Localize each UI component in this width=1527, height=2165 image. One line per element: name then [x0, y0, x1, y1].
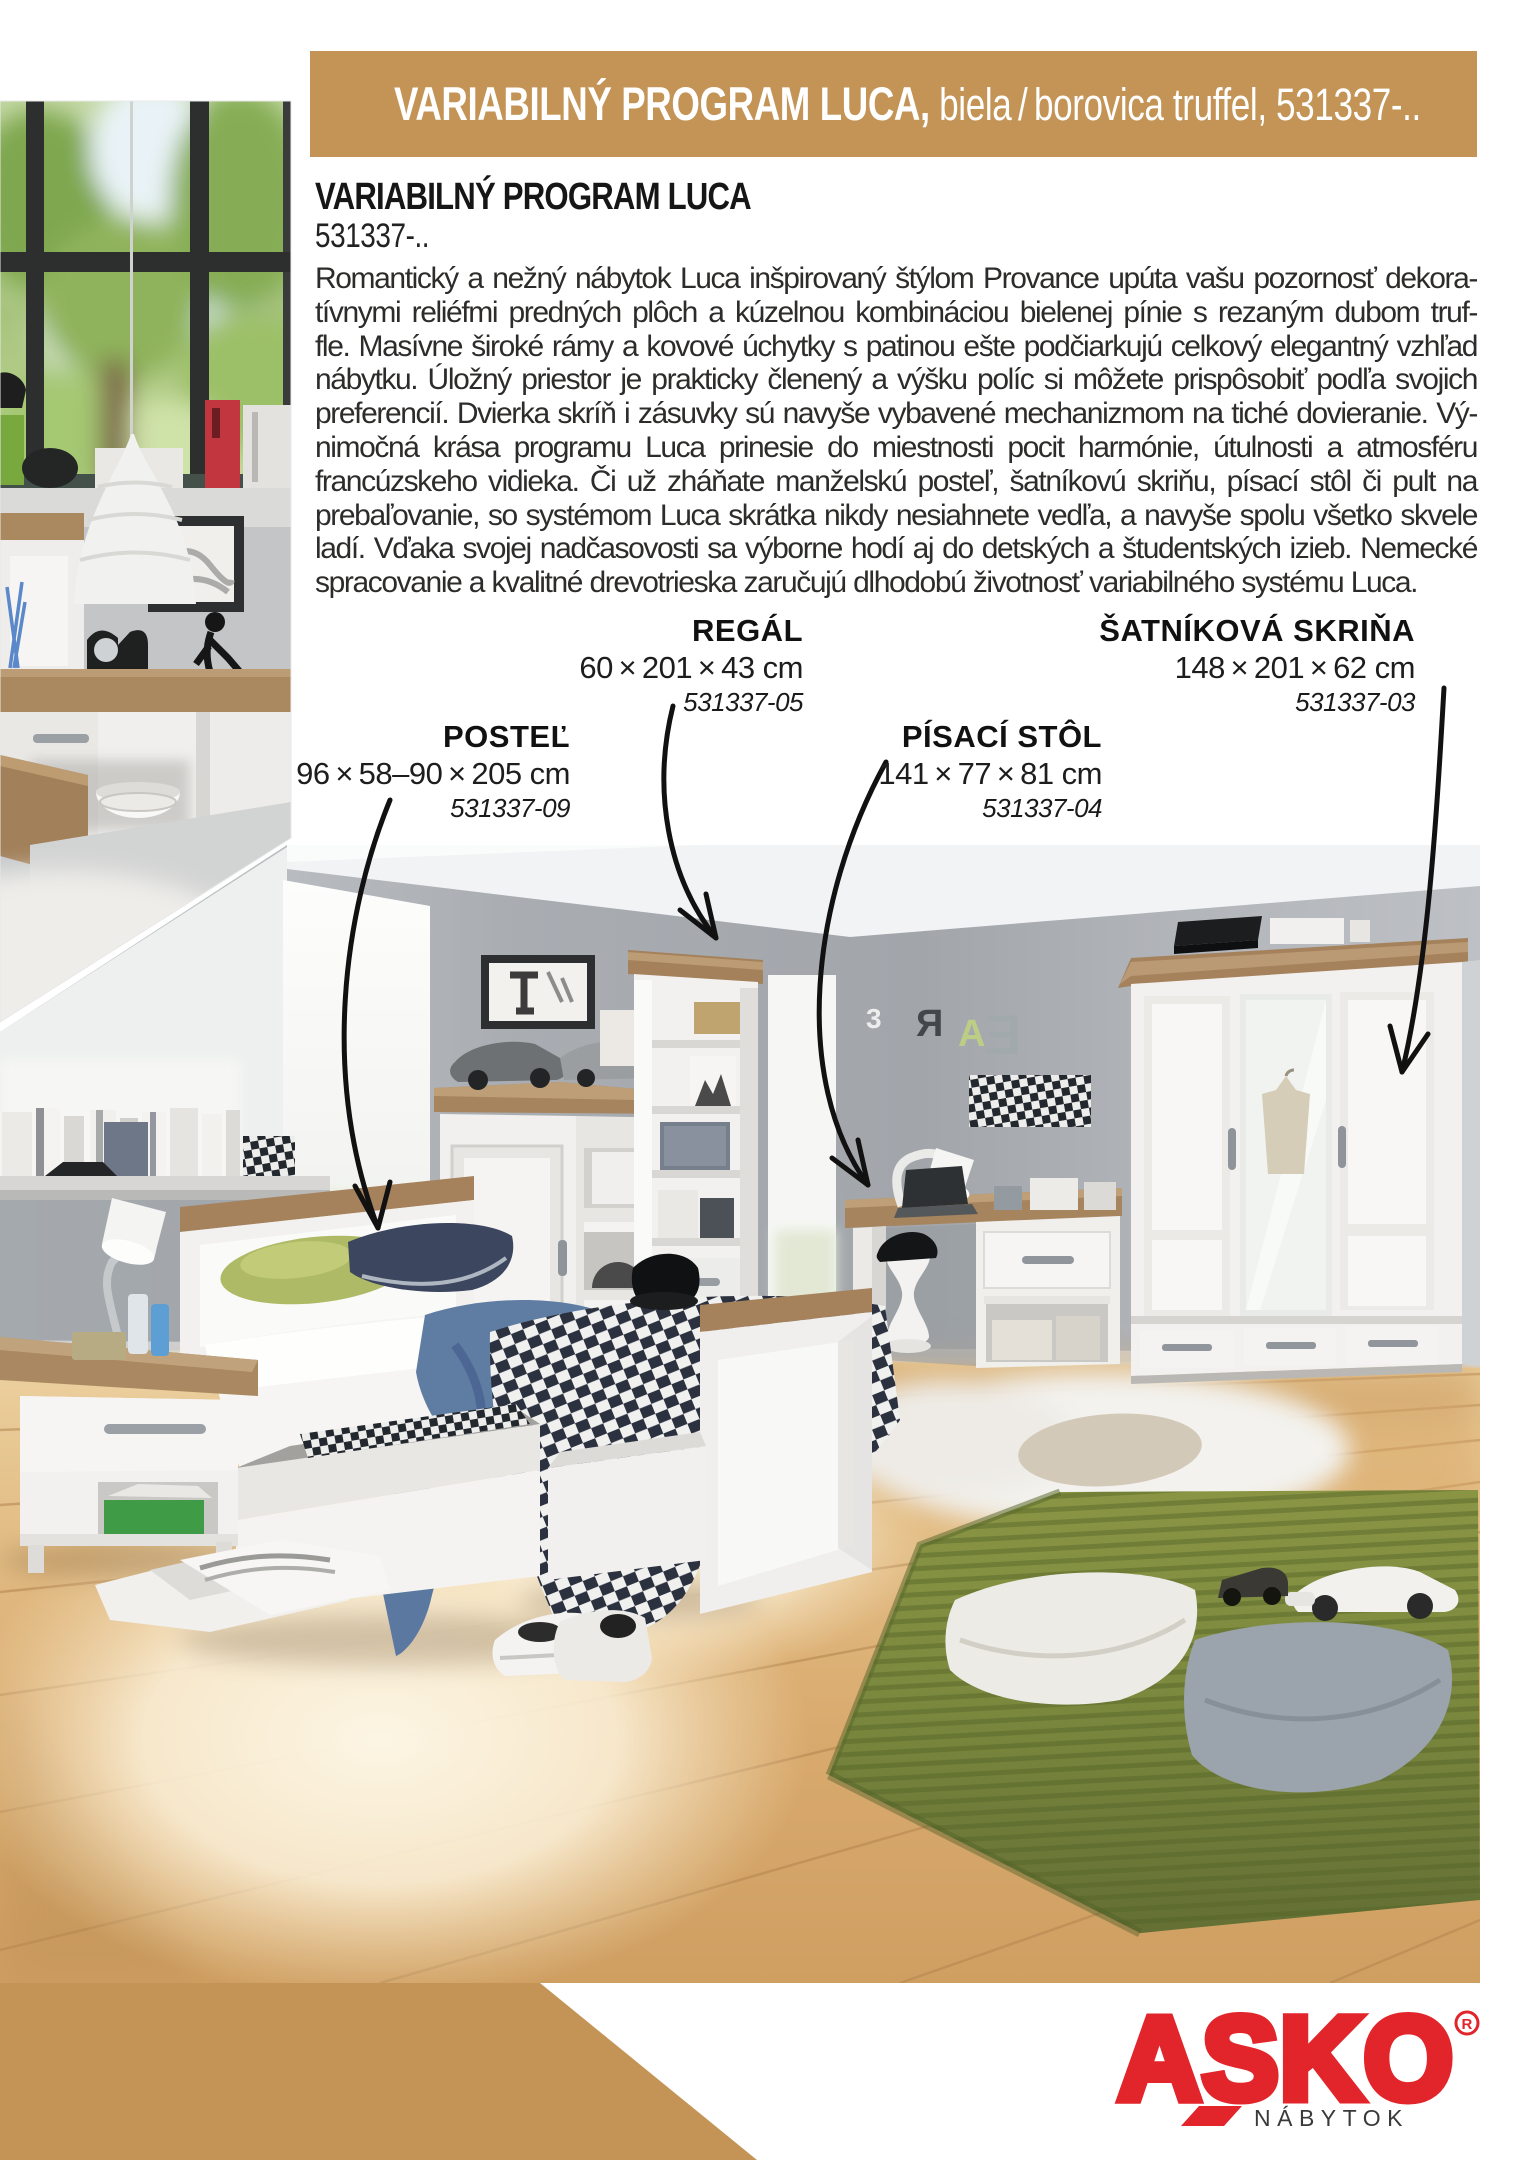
svg-text:Я: Я: [916, 1003, 943, 1045]
svg-text:A: A: [958, 1013, 985, 1055]
svg-text:3: 3: [866, 1003, 882, 1034]
svg-text:NÁBYTOK: NÁBYTOK: [1254, 2105, 1409, 2131]
svg-text:R: R: [1462, 2016, 1473, 2033]
svg-text:Ǝ: Ǝ: [984, 1003, 1021, 1066]
